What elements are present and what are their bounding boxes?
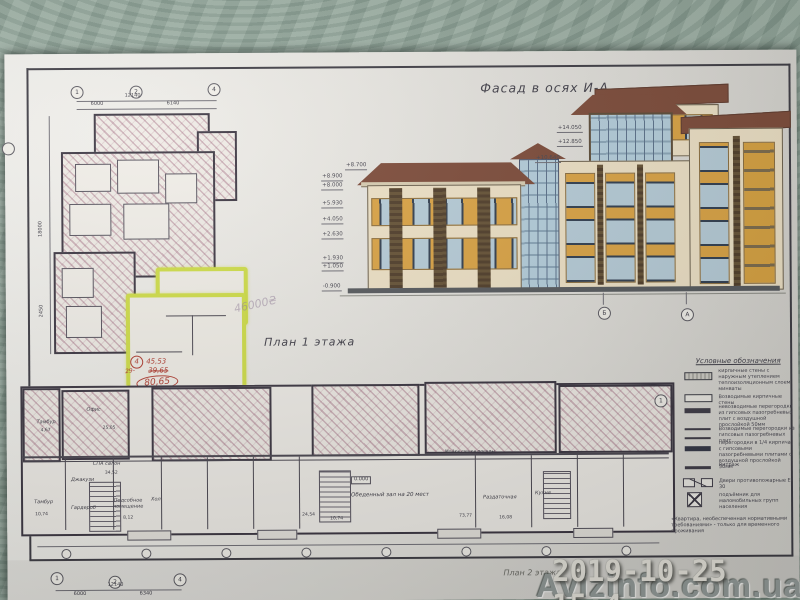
- elevation-mark: +8.900: [321, 173, 343, 181]
- elevation-mark: +8.700: [345, 162, 367, 170]
- elevation-zero-box: 0.000: [351, 476, 371, 484]
- legend-footnote: «Квартира, необеспеченная нормативными т…: [671, 516, 797, 535]
- dimension-value: 12140: [125, 94, 141, 100]
- wing-wall-block: [311, 384, 419, 457]
- plan-title: План 1 этажа: [264, 336, 355, 349]
- red-note-area: 45,53: [146, 358, 166, 366]
- facade-brick-pilaster: [597, 165, 604, 285]
- plan-room: [165, 173, 197, 203]
- elevation-mark: +1.930: [322, 255, 344, 263]
- room-label: Гардероб: [71, 506, 96, 512]
- elevation-mark: -0.900: [322, 283, 342, 291]
- plan-axis-bubble: 4: [208, 83, 221, 96]
- red-note-prefix: 29-: [125, 368, 135, 376]
- legend-item-text: кирпичные стены с наружным утеплением те…: [718, 368, 794, 392]
- elevation-mark: +5.930: [321, 200, 343, 208]
- elevation-mark: +10.640: [535, 155, 561, 163]
- facade-axis-bubble: А: [681, 308, 694, 321]
- entrance-porch: [437, 529, 481, 539]
- wing-wall-block: [424, 381, 556, 454]
- wing-wall-block: [61, 390, 129, 460]
- axis-bubble-small: [61, 549, 71, 559]
- facade-brick-pilaster: [433, 188, 447, 288]
- axis-bubble-small: [221, 548, 231, 558]
- facade-brick-pilaster: [389, 188, 403, 288]
- legend-symbol-brick-wall: [684, 394, 712, 402]
- facade-brick-pilaster: [733, 136, 741, 286]
- dimension-value: 12140: [108, 583, 124, 589]
- camera-timestamp: 2019-10-25 15:4: [552, 554, 800, 600]
- room-area: 73,77: [459, 514, 472, 519]
- wing-axis-bubble: 1: [654, 394, 667, 407]
- axis-bubble-small: [381, 547, 391, 557]
- room-label: Раздаточная: [483, 495, 517, 501]
- wing-bottom-dim-line: [37, 542, 659, 547]
- facade-brick-pilaster: [637, 165, 644, 285]
- elevation-mark: +8.000: [321, 182, 343, 190]
- legend-item-text: Двери противопожарные EI 30: [719, 478, 795, 490]
- dimension-value: 2450: [39, 305, 45, 318]
- legend-symbol-insulated-wall: [684, 372, 712, 380]
- wing-wall-block: [151, 387, 271, 462]
- room-area: 10,74: [330, 516, 343, 521]
- blueprint-sheet: Фасад в осях И-А: [4, 50, 799, 600]
- dimension-value: 18000: [39, 221, 45, 237]
- dimension-value: 6340: [140, 592, 153, 598]
- legend-symbol-doors: [683, 476, 715, 488]
- axis-leader: [686, 292, 687, 304]
- elevation-mark: +2.630: [321, 231, 343, 239]
- photo-scene: Фасад в осях И-А: [0, 0, 800, 600]
- room-label: Кухня: [535, 491, 551, 497]
- plan-room: [123, 203, 169, 239]
- facade-right-window-band: [645, 172, 676, 282]
- room-area: 4,67: [41, 428, 51, 433]
- legend-item-text: Витраж: [719, 462, 795, 468]
- plan-room: [62, 268, 94, 298]
- facade-axis-bubble: Б: [598, 307, 611, 320]
- next-sheet-axis-bubble: 1: [50, 572, 63, 585]
- axis-bubble-small: [461, 547, 471, 557]
- entrance-porch: [127, 530, 171, 540]
- room-label: Тамбур: [34, 500, 53, 506]
- dimension-value: 6000: [91, 102, 104, 108]
- legend-item-text: невозводимые перегородки из гипсовых паз…: [718, 404, 794, 428]
- dimension-line-vertical: [49, 116, 51, 354]
- facade-far-window-column: [699, 142, 730, 284]
- dimension-line: [77, 108, 217, 110]
- room-label: Джакузи: [71, 478, 94, 484]
- legend-item-text: подъёмник для маломобильных групп населе…: [719, 492, 795, 510]
- facade-ground-line: [340, 293, 786, 297]
- next-sheet-axis-bubble: 4: [174, 573, 187, 586]
- room-label: Мойка сушка посуды: [445, 449, 495, 454]
- axis-bubble-small: [541, 546, 551, 556]
- room-area: 25,05: [103, 426, 116, 431]
- stair-symbol: [319, 470, 351, 522]
- room-area: 34,52: [105, 471, 118, 476]
- elevation-mark: +1.050: [322, 263, 344, 271]
- door-symbol-rect: [701, 478, 713, 487]
- facade-right-window-band: [565, 173, 596, 283]
- legend-symbol-vitrage: [685, 466, 711, 469]
- plan-wall-block: [54, 252, 137, 354]
- elevation-mark: +14.050: [557, 125, 583, 133]
- axis-leader: [603, 293, 604, 305]
- legend-symbol-partition-double: [685, 428, 711, 439]
- plan-room: [69, 204, 111, 236]
- red-note-area-struck: 39,65: [148, 367, 168, 375]
- elevation-mark: +4.050: [321, 216, 343, 224]
- legend-symbol-partition-thick: [685, 408, 711, 413]
- room-label: СПА салон: [93, 462, 121, 468]
- room-label: Офис: [86, 408, 100, 414]
- facade-glazed-gable: [589, 112, 673, 167]
- room-label: Подсобное помещение: [107, 498, 149, 510]
- legend-symbol-lift: [687, 492, 702, 507]
- facade-right-window-band: [605, 173, 636, 283]
- room-label: Хол: [151, 497, 161, 503]
- plan-room: [66, 306, 102, 338]
- legend-title: Условные обозначения: [682, 358, 794, 367]
- frame-top-line: [26, 64, 790, 70]
- room-label: Тамбур: [37, 420, 56, 426]
- dimension-value: 6140: [167, 101, 180, 107]
- plan-axis-bubble: 1: [71, 86, 84, 99]
- room-area: 10,74: [35, 512, 48, 517]
- facade-brick-pilaster: [477, 187, 491, 287]
- wing-wall-block: [558, 384, 672, 453]
- room-label: Обеденный зал на 20 мест: [351, 492, 429, 499]
- room-area: 24,54: [302, 513, 315, 518]
- entrance-porch: [573, 528, 613, 538]
- facade-balcony-stack: [743, 142, 776, 284]
- axis-bubble-small: [301, 548, 311, 558]
- legend-symbol-partition-quarter: [685, 446, 711, 451]
- dimension-value: 6000: [74, 592, 87, 598]
- room-area: 8,12: [123, 516, 133, 521]
- plan-room: [75, 164, 111, 192]
- elevation-mark: +12.850: [557, 139, 583, 147]
- room-area: 16,08: [499, 515, 512, 520]
- plan-room: [117, 159, 159, 193]
- plan-axis-bubble-left: [2, 142, 15, 155]
- axis-bubble-small: [141, 549, 151, 559]
- entrance-porch: [257, 530, 297, 540]
